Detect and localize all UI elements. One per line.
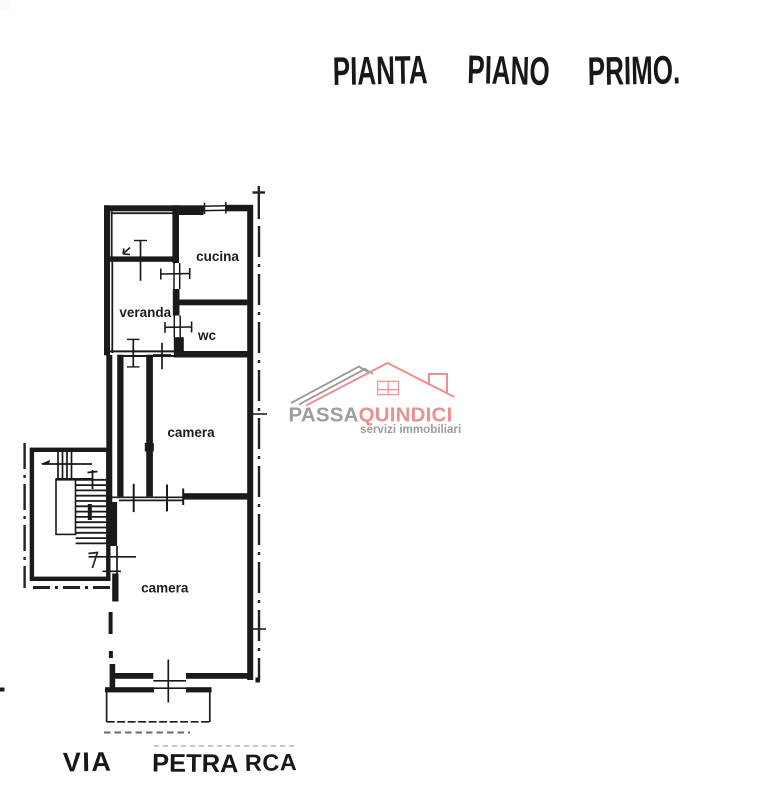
svg-text:PRIMO.: PRIMO. [587,48,680,95]
svg-text:camera: camera [141,580,189,595]
svg-text:PIANO: PIANO [467,47,550,94]
svg-text:PETRA: PETRA [152,750,239,779]
svg-text:cucina: cucina [196,249,239,264]
svg-text:RCA: RCA [245,749,298,776]
svg-text:PIANTA: PIANTA [332,48,428,95]
svg-text:servizi immobiliari: servizi immobiliari [360,423,461,436]
svg-text:veranda: veranda [119,305,171,320]
svg-text:camera: camera [167,425,215,440]
svg-text:wc: wc [197,328,217,343]
svg-text:VIA: VIA [63,747,113,778]
